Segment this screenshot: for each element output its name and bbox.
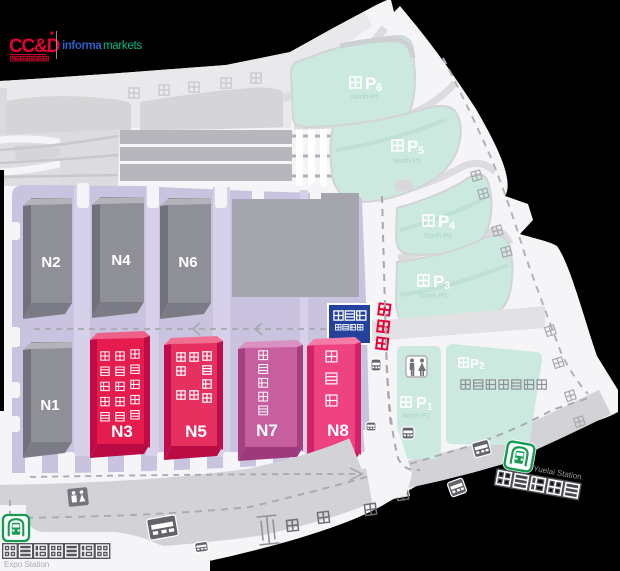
svg-text:N6: N6 xyxy=(178,254,197,271)
svg-text:CC&D: CC&D xyxy=(9,36,60,57)
svg-text:N8: N8 xyxy=(327,421,349,440)
svg-text:Expo Station: Expo Station xyxy=(4,560,49,569)
svg-text:P: P xyxy=(407,137,418,156)
svg-text:3: 3 xyxy=(444,280,450,292)
svg-text:4: 4 xyxy=(449,220,456,232)
svg-text:P: P xyxy=(438,212,449,231)
svg-text:North-P6: North-P6 xyxy=(351,94,379,101)
svg-text:North-P1: North-P1 xyxy=(402,413,430,420)
svg-text:N5: N5 xyxy=(185,422,207,441)
svg-text:North-P3: North-P3 xyxy=(419,293,447,300)
svg-text:2: 2 xyxy=(479,361,485,372)
svg-text:N4: N4 xyxy=(111,252,131,269)
svg-text:informa: informa xyxy=(62,40,102,52)
svg-text:P: P xyxy=(433,272,444,291)
svg-text:N7: N7 xyxy=(256,421,278,440)
svg-text:N1: N1 xyxy=(40,397,59,414)
svg-text:P: P xyxy=(365,74,376,93)
svg-text:5: 5 xyxy=(418,145,424,157)
svg-text:1: 1 xyxy=(427,402,433,413)
svg-text:N2: N2 xyxy=(41,254,60,271)
svg-text:North-P5: North-P5 xyxy=(393,158,421,165)
svg-text:markets: markets xyxy=(103,40,142,52)
svg-text:6: 6 xyxy=(376,82,382,94)
svg-text:North-P4: North-P4 xyxy=(424,233,452,240)
svg-text:N3: N3 xyxy=(111,422,133,441)
svg-text:P: P xyxy=(416,395,427,412)
svg-text:P: P xyxy=(470,356,479,371)
